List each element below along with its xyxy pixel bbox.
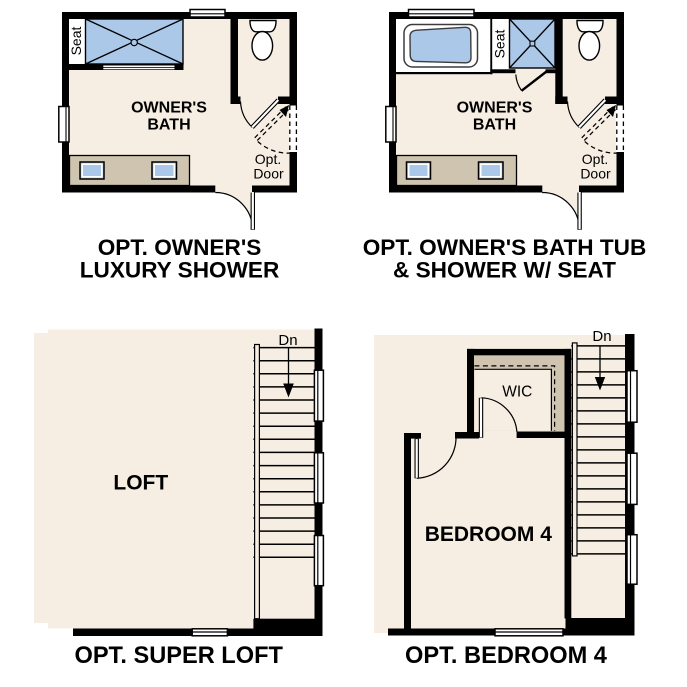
svg-text:BATH: BATH <box>473 116 516 133</box>
svg-text:Seat: Seat <box>68 26 84 55</box>
svg-text:Opt.: Opt. <box>582 151 608 167</box>
svg-text:Seat: Seat <box>492 29 508 58</box>
svg-text:OWNER'S: OWNER'S <box>131 100 207 117</box>
svg-text:OPT. BEDROOM 4: OPT. BEDROOM 4 <box>405 643 607 669</box>
svg-text:& SHOWER W/ SEAT: & SHOWER W/ SEAT <box>393 257 616 282</box>
svg-text:Door: Door <box>580 166 611 182</box>
svg-text:BATH: BATH <box>147 116 190 133</box>
svg-text:WIC: WIC <box>502 383 532 400</box>
svg-text:OWNER'S: OWNER'S <box>457 100 533 117</box>
svg-text:Door: Door <box>253 166 284 182</box>
svg-text:LOFT: LOFT <box>113 472 168 495</box>
svg-text:OPT. SUPER LOFT: OPT. SUPER LOFT <box>74 643 283 669</box>
svg-text:BEDROOM 4: BEDROOM 4 <box>425 523 553 546</box>
svg-text:LUXURY SHOWER: LUXURY SHOWER <box>80 257 280 282</box>
svg-text:Dn: Dn <box>592 328 611 345</box>
svg-text:Opt.: Opt. <box>255 151 281 167</box>
svg-text:Dn: Dn <box>278 332 297 349</box>
